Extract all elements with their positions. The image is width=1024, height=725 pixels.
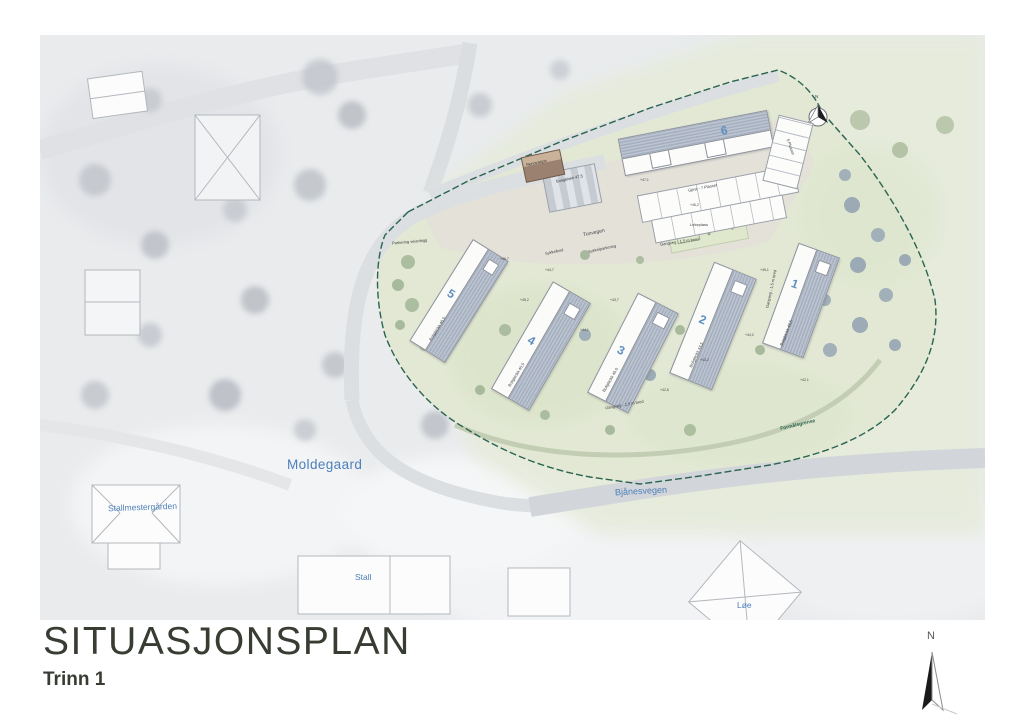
- spot-elevation: +42,6: [660, 388, 669, 392]
- site-plan-map: 5 4 3 2 1 6 Moldegaard Stallmestergården…: [40, 35, 985, 620]
- title-block: SITUASJONSPLAN Trinn 1: [43, 622, 411, 691]
- spot-elevation: +44,1: [580, 328, 589, 332]
- label-stallmestergarden: Stallmestergården: [108, 502, 177, 513]
- label-playground: Lekeplass: [690, 223, 708, 227]
- north-arrow: N: [905, 630, 965, 720]
- page-subtitle: Trinn 1: [43, 669, 411, 691]
- label-moldegaard: Moldegaard: [287, 458, 362, 472]
- label-stall: Stall: [355, 573, 372, 582]
- spot-elevation: +44,7: [545, 268, 554, 272]
- spot-elevation: +43,7: [610, 298, 619, 302]
- spot-elevation: +46,2: [690, 203, 699, 207]
- spot-elevation: +47,1: [640, 178, 649, 182]
- page-title: SITUASJONSPLAN: [43, 622, 411, 663]
- north-arrow-icon: [905, 630, 965, 720]
- north-label: N: [927, 630, 935, 642]
- spot-elevation: +45,1: [760, 268, 769, 272]
- spot-elevation: +44,2: [745, 333, 754, 337]
- plan-compass-label: N: [815, 95, 818, 100]
- spot-elevation: +46,7: [500, 257, 509, 261]
- spot-elevation: +43,2: [700, 358, 709, 362]
- label-loe: Løe: [737, 601, 752, 610]
- spot-elevation: +42,1: [800, 378, 809, 382]
- site-plan-canvas: [40, 35, 985, 620]
- spot-elevation: +45,2: [520, 298, 529, 302]
